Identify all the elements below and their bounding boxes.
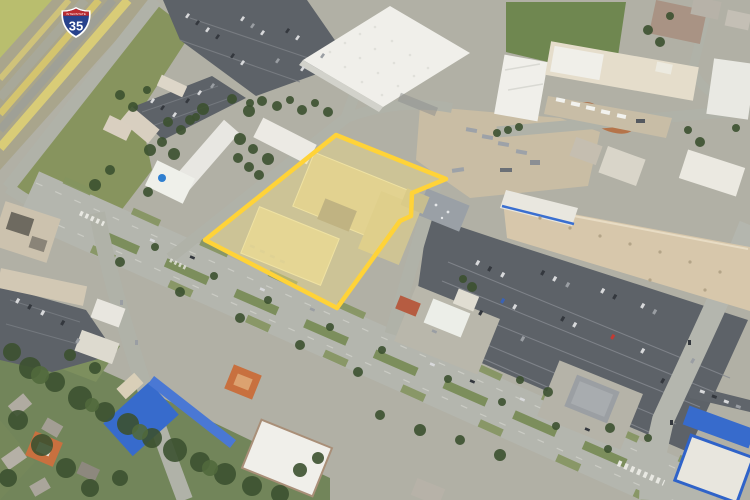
map-viewport[interactable]: INTERSTATE 35	[0, 0, 750, 500]
aerial-photo: INTERSTATE 35	[0, 0, 750, 500]
shield-route-number: 35	[69, 19, 83, 34]
shield-band-text: INTERSTATE	[66, 12, 86, 16]
